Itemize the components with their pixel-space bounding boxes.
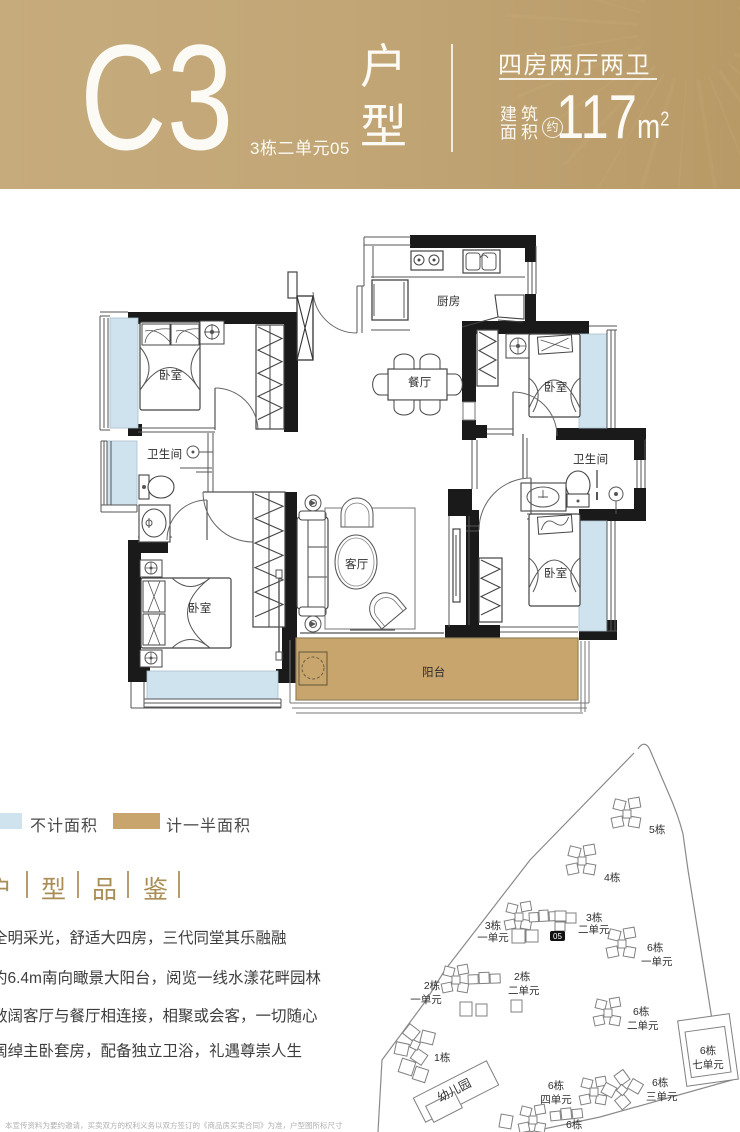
svg-text:2栋: 2栋 xyxy=(514,970,531,983)
svg-text:七单元: 七单元 xyxy=(692,1059,724,1071)
svg-text:二单元: 二单元 xyxy=(627,1020,659,1032)
svg-text:厨房: 厨房 xyxy=(437,295,461,308)
svg-text:二单元: 二单元 xyxy=(578,924,610,936)
svg-text:一单元: 一单元 xyxy=(641,956,673,968)
svg-text:客厅: 客厅 xyxy=(345,557,369,571)
svg-text:卧室: 卧室 xyxy=(159,368,183,382)
svg-text:4栋: 4栋 xyxy=(604,871,621,884)
svg-text:6栋: 6栋 xyxy=(633,1005,650,1018)
svg-text:2栋: 2栋 xyxy=(424,979,441,992)
svg-text:四单元: 四单元 xyxy=(540,1094,572,1106)
svg-text:6栋: 6栋 xyxy=(700,1044,717,1057)
svg-text:5栋: 5栋 xyxy=(649,823,666,836)
svg-text:卫生间: 卫生间 xyxy=(573,452,608,466)
svg-text:1栋: 1栋 xyxy=(434,1051,451,1064)
svg-text:6栋: 6栋 xyxy=(647,941,664,954)
svg-text:05: 05 xyxy=(553,932,562,941)
svg-text:卧室: 卧室 xyxy=(544,380,568,394)
svg-text:阳台: 阳台 xyxy=(422,665,446,679)
svg-text:卧室: 卧室 xyxy=(544,566,568,580)
svg-text:一单元: 一单元 xyxy=(410,994,442,1006)
svg-text:一单元: 一单元 xyxy=(477,932,509,944)
svg-text:餐厅: 餐厅 xyxy=(408,375,432,389)
svg-text:二单元: 二单元 xyxy=(508,985,540,997)
svg-text:6栋: 6栋 xyxy=(548,1079,565,1092)
svg-text:6栋: 6栋 xyxy=(652,1076,669,1089)
svg-text:3栋: 3栋 xyxy=(485,919,502,932)
svg-text:卫生间: 卫生间 xyxy=(147,447,182,461)
svg-text:3栋: 3栋 xyxy=(586,911,603,924)
svg-text:卧室: 卧室 xyxy=(188,601,212,615)
svg-text:三单元: 三单元 xyxy=(646,1091,678,1103)
svg-text:6栋: 6栋 xyxy=(566,1118,583,1131)
